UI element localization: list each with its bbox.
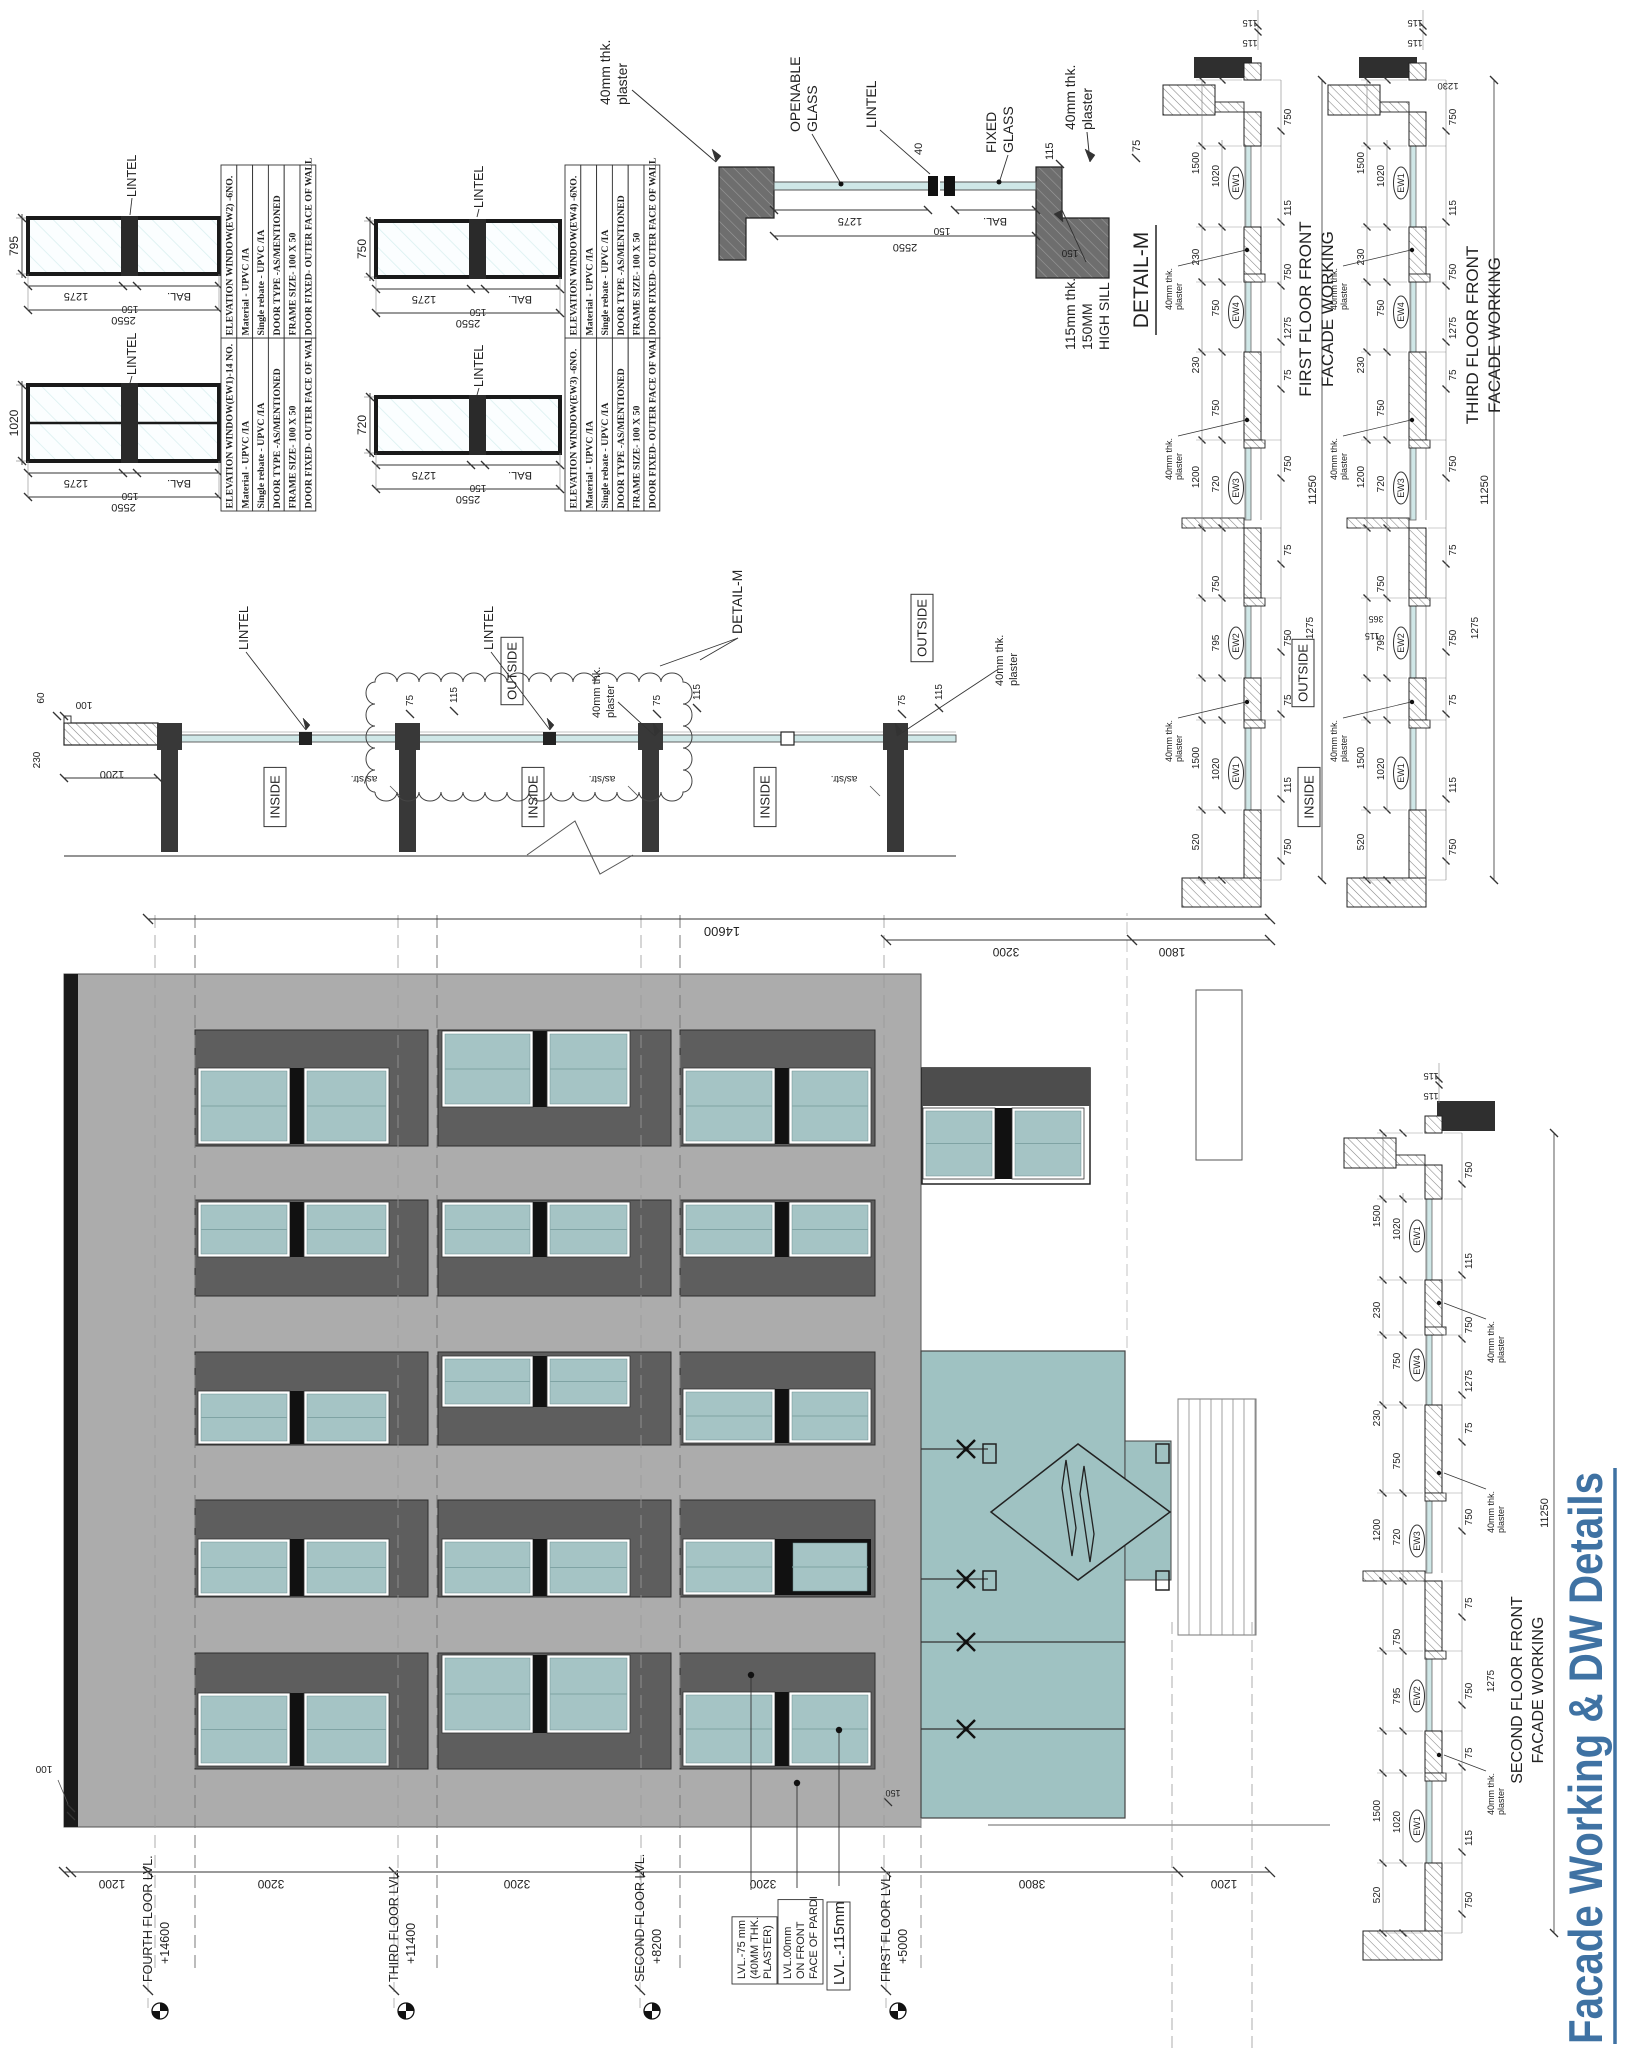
svg-text:+5000: +5000 xyxy=(896,1929,910,1964)
svg-text:150: 150 xyxy=(885,1788,900,1798)
svg-text:BAL.: BAL. xyxy=(508,293,532,305)
svg-text:115: 115 xyxy=(1365,631,1379,641)
svg-text:BAL.: BAL. xyxy=(508,469,532,481)
svg-text:795: 795 xyxy=(1392,1687,1403,1704)
svg-text:11250: 11250 xyxy=(1479,475,1491,505)
svg-text:HIGH SILL: HIGH SILL xyxy=(1096,282,1112,350)
svg-text:1020: 1020 xyxy=(1211,164,1222,187)
svg-text:75: 75 xyxy=(1131,140,1143,152)
svg-text:75: 75 xyxy=(1283,369,1294,381)
svg-text:OPENABLE: OPENABLE xyxy=(787,57,803,132)
svg-text:1275: 1275 xyxy=(838,215,862,227)
svg-text:720: 720 xyxy=(1211,475,1222,492)
svg-text:plaster: plaster xyxy=(614,63,630,105)
svg-text:DOOR FIXED- OUTER FACE OF WALL: DOOR FIXED- OUTER FACE OF WALL xyxy=(648,330,659,509)
svg-text:750: 750 xyxy=(1392,1452,1403,1469)
svg-text:720: 720 xyxy=(1376,475,1387,492)
svg-text:75: 75 xyxy=(1464,1422,1475,1434)
svg-text:40mm thk.: 40mm thk. xyxy=(1164,438,1174,480)
svg-text:as/str.: as/str. xyxy=(831,773,858,784)
svg-text:75: 75 xyxy=(897,694,908,706)
svg-text:40mm thk.: 40mm thk. xyxy=(994,635,1006,686)
svg-text:THIRD FLOOR FRONT: THIRD FLOOR FRONT xyxy=(1463,246,1482,425)
svg-text:plaster: plaster xyxy=(605,685,617,718)
svg-text:795: 795 xyxy=(1211,634,1222,651)
svg-text:EW2: EW2 xyxy=(1412,1686,1422,1706)
svg-text:750: 750 xyxy=(1283,838,1294,855)
svg-text:750: 750 xyxy=(1211,575,1222,592)
svg-text:1800: 1800 xyxy=(1158,945,1185,959)
svg-text:EW3: EW3 xyxy=(1412,1531,1422,1551)
svg-text:Single rebate - UPVC /IA: Single rebate - UPVC /IA xyxy=(256,230,267,336)
svg-text:DETAIL-M: DETAIL-M xyxy=(1130,232,1153,328)
svg-text:plaster: plaster xyxy=(1339,283,1349,310)
svg-text:750: 750 xyxy=(1464,1316,1475,1333)
svg-text:+14600: +14600 xyxy=(158,1922,172,1964)
svg-text:DOOR TYPE -AS/MENTIONED: DOOR TYPE -AS/MENTIONED xyxy=(616,195,627,335)
svg-text:EW1: EW1 xyxy=(1412,1816,1422,1836)
svg-text:EW1: EW1 xyxy=(1412,1226,1422,1246)
svg-text:115: 115 xyxy=(1448,777,1459,793)
svg-text:115: 115 xyxy=(1407,37,1422,48)
svg-text:1275: 1275 xyxy=(1305,616,1316,639)
svg-text:GLASS: GLASS xyxy=(1000,106,1016,153)
svg-text:EW4: EW4 xyxy=(1396,302,1406,322)
svg-text:11250: 11250 xyxy=(1307,475,1319,505)
svg-text:2550: 2550 xyxy=(456,493,480,505)
svg-text:750: 750 xyxy=(1283,455,1294,472)
svg-text:75: 75 xyxy=(1283,544,1294,556)
svg-text:1020: 1020 xyxy=(1376,757,1387,780)
svg-text:3200: 3200 xyxy=(992,945,1019,959)
svg-text:40: 40 xyxy=(913,143,925,155)
svg-text:1275: 1275 xyxy=(64,290,88,302)
svg-text:PLASTER): PLASTER) xyxy=(762,1925,774,1979)
svg-text:FACE OF PARDI: FACE OF PARDI xyxy=(808,1896,820,1979)
svg-text:750: 750 xyxy=(1376,399,1387,416)
svg-text:100: 100 xyxy=(75,699,92,710)
svg-text:GLASS: GLASS xyxy=(804,85,820,132)
svg-text:Single rebate - UPVC /IA: Single rebate - UPVC /IA xyxy=(256,403,267,509)
svg-text:750: 750 xyxy=(1448,455,1459,472)
svg-text:DOOR TYPE -AS/MENTIONED: DOOR TYPE -AS/MENTIONED xyxy=(272,195,283,335)
svg-text:2550: 2550 xyxy=(111,314,135,326)
svg-text:1200: 1200 xyxy=(1356,465,1367,488)
svg-text:115: 115 xyxy=(1464,1830,1475,1846)
svg-text:EW1: EW1 xyxy=(1231,763,1241,783)
svg-text:plaster: plaster xyxy=(1174,735,1184,762)
svg-text:FACADE WORKING: FACADE WORKING xyxy=(1318,231,1337,387)
svg-text:795: 795 xyxy=(7,236,21,256)
svg-text:plaster: plaster xyxy=(1496,1336,1506,1363)
svg-text:3800: 3800 xyxy=(1018,1877,1045,1891)
svg-text:520: 520 xyxy=(1372,1886,1383,1903)
svg-text:FRAME SIZE- 100 X 50: FRAME SIZE- 100 X 50 xyxy=(288,406,299,509)
svg-text:1200: 1200 xyxy=(1191,465,1202,488)
svg-text:230: 230 xyxy=(1372,1409,1383,1426)
svg-text:750: 750 xyxy=(1211,299,1222,316)
svg-text:FRAME SIZE- 100 X 50: FRAME SIZE- 100 X 50 xyxy=(632,406,643,509)
svg-text:EW4: EW4 xyxy=(1412,1355,1422,1375)
svg-text:1230: 1230 xyxy=(1437,80,1458,91)
svg-text:150: 150 xyxy=(469,306,486,317)
svg-text:750: 750 xyxy=(1464,1891,1475,1908)
svg-text:FOURTH FLOOR LVL.: FOURTH FLOOR LVL. xyxy=(141,1855,155,1982)
svg-text:115: 115 xyxy=(1448,200,1459,216)
svg-text:115: 115 xyxy=(1283,200,1294,216)
svg-text:1275: 1275 xyxy=(1486,1669,1497,1692)
svg-text:EW1: EW1 xyxy=(1231,173,1241,193)
svg-text:EW1: EW1 xyxy=(1396,763,1406,783)
svg-text:FACADE WORKING: FACADE WORKING xyxy=(1530,1617,1547,1764)
svg-text:115: 115 xyxy=(1423,1090,1438,1101)
svg-text:Material - UPVC /IA: Material - UPVC /IA xyxy=(584,421,595,509)
svg-text:Material - UPVC /IA: Material - UPVC /IA xyxy=(240,421,251,509)
svg-text:750: 750 xyxy=(1283,108,1294,125)
svg-text:750: 750 xyxy=(1464,1161,1475,1178)
svg-text:2550: 2550 xyxy=(111,501,135,513)
svg-text:EW3: EW3 xyxy=(1231,478,1241,498)
svg-text:750: 750 xyxy=(1283,263,1294,280)
svg-text:DOOR TYPE -AS/MENTIONED: DOOR TYPE -AS/MENTIONED xyxy=(272,368,283,508)
svg-text:115: 115 xyxy=(692,684,703,700)
svg-text:1275: 1275 xyxy=(412,469,436,481)
svg-text:FIRST FLOOR FRONT: FIRST FLOOR FRONT xyxy=(1296,221,1315,396)
svg-text:230: 230 xyxy=(1191,356,1202,373)
svg-text:115mm thk.: 115mm thk. xyxy=(1062,278,1078,350)
svg-text:750: 750 xyxy=(1376,299,1387,316)
svg-text:1275: 1275 xyxy=(1448,316,1459,339)
svg-text:115: 115 xyxy=(1242,37,1257,48)
svg-text:1200: 1200 xyxy=(1210,1877,1237,1891)
svg-text:750: 750 xyxy=(1448,838,1459,855)
svg-text:75: 75 xyxy=(1448,369,1459,381)
svg-text:LINTEL: LINTEL xyxy=(236,606,251,650)
svg-text:75: 75 xyxy=(652,694,663,706)
svg-text:FACADE WORKING: FACADE WORKING xyxy=(1485,257,1504,413)
svg-text:1275: 1275 xyxy=(1283,316,1294,339)
svg-text:OUTSIDE: OUTSIDE xyxy=(505,642,520,700)
svg-text:SECOND FLOOR FRONT: SECOND FLOOR FRONT xyxy=(1509,1596,1526,1784)
svg-text:11250: 11250 xyxy=(1539,1498,1551,1528)
svg-text:75: 75 xyxy=(1464,1597,1475,1609)
svg-text:365: 365 xyxy=(1368,614,1383,624)
svg-text:115: 115 xyxy=(449,687,460,703)
svg-text:3200: 3200 xyxy=(749,1877,776,1891)
svg-text:115: 115 xyxy=(934,684,945,700)
svg-text:1020: 1020 xyxy=(1376,164,1387,187)
svg-text:100: 100 xyxy=(35,1763,52,1774)
svg-text:LINTEL: LINTEL xyxy=(472,345,486,387)
svg-text:750: 750 xyxy=(1448,108,1459,125)
svg-text:1500: 1500 xyxy=(1356,746,1367,769)
svg-text:1200: 1200 xyxy=(1372,1518,1383,1541)
svg-text:1500: 1500 xyxy=(1372,1204,1383,1227)
svg-text:plaster: plaster xyxy=(1496,1788,1506,1815)
svg-text:150MM: 150MM xyxy=(1079,303,1095,350)
svg-text:150: 150 xyxy=(933,225,950,236)
svg-text:1500: 1500 xyxy=(1191,151,1202,174)
svg-text:40mm thk.: 40mm thk. xyxy=(1062,65,1078,130)
svg-text:750: 750 xyxy=(1448,263,1459,280)
svg-text:BAL.: BAL. xyxy=(167,290,191,302)
svg-text:750: 750 xyxy=(1211,399,1222,416)
svg-text:1500: 1500 xyxy=(1372,1799,1383,1822)
svg-text:OUTSIDE: OUTSIDE xyxy=(1296,644,1311,702)
svg-text:Single rebate - UPVC /IA: Single rebate - UPVC /IA xyxy=(600,230,611,336)
svg-text:INSIDE: INSIDE xyxy=(758,775,773,819)
svg-text:1020: 1020 xyxy=(1392,1217,1403,1240)
svg-text:plaster: plaster xyxy=(1008,653,1020,686)
svg-text:LVL.00mm: LVL.00mm xyxy=(782,1927,794,1979)
svg-text:Material - UPVC /IA: Material - UPVC /IA xyxy=(240,248,251,336)
svg-text:75: 75 xyxy=(1448,694,1459,706)
svg-text:115: 115 xyxy=(1464,1253,1475,1269)
svg-text:1275: 1275 xyxy=(1464,1369,1475,1392)
svg-text:DOOR FIXED- OUTER FACE OF WALL: DOOR FIXED- OUTER FACE OF WALL xyxy=(304,157,315,336)
svg-text:40mm thk.: 40mm thk. xyxy=(597,40,613,105)
svg-text:40mm thk.: 40mm thk. xyxy=(1164,720,1174,762)
svg-text:1200: 1200 xyxy=(98,1877,125,1891)
svg-text:75: 75 xyxy=(405,694,416,706)
svg-text:3200: 3200 xyxy=(503,1877,530,1891)
svg-text:720: 720 xyxy=(1392,1528,1403,1545)
svg-text:plaster: plaster xyxy=(1339,735,1349,762)
svg-text:1275: 1275 xyxy=(412,293,436,305)
svg-text:EW3: EW3 xyxy=(1396,478,1406,498)
svg-text:230: 230 xyxy=(32,751,43,768)
svg-text:EW4: EW4 xyxy=(1231,302,1241,322)
svg-text:40mm thk.: 40mm thk. xyxy=(1164,268,1174,310)
svg-text:LINTEL: LINTEL xyxy=(863,80,879,128)
svg-text:LINTEL: LINTEL xyxy=(125,333,139,375)
svg-text:3200: 3200 xyxy=(257,1877,284,1891)
svg-text:750: 750 xyxy=(355,239,369,259)
svg-text:BAL.: BAL. xyxy=(983,215,1007,227)
svg-text:14600: 14600 xyxy=(704,924,740,939)
svg-text:750: 750 xyxy=(1464,1682,1475,1699)
svg-text:150: 150 xyxy=(121,490,138,501)
svg-text:1020: 1020 xyxy=(7,409,21,436)
svg-text:1020: 1020 xyxy=(1211,757,1222,780)
svg-text:as/str.: as/str. xyxy=(589,773,616,784)
svg-text:150: 150 xyxy=(469,482,486,493)
svg-text:750: 750 xyxy=(1376,575,1387,592)
svg-text:1500: 1500 xyxy=(1191,746,1202,769)
svg-text:2550: 2550 xyxy=(456,317,480,329)
svg-text:THIRD FLOOR LVL.: THIRD FLOOR LVL. xyxy=(387,1869,401,1982)
svg-text:plaster: plaster xyxy=(1079,88,1095,130)
svg-text:plaster: plaster xyxy=(1174,453,1184,480)
svg-text:115: 115 xyxy=(1044,142,1056,160)
svg-text:Facade Working & DW Details: Facade Working & DW Details xyxy=(1559,1472,1612,2044)
svg-text:plaster: plaster xyxy=(1496,1506,1506,1533)
svg-text:+8200: +8200 xyxy=(650,1929,664,1964)
svg-text:1020: 1020 xyxy=(1392,1810,1403,1833)
svg-text:plaster: plaster xyxy=(1174,283,1184,310)
svg-text:2550: 2550 xyxy=(893,241,917,253)
svg-text:EW2: EW2 xyxy=(1396,633,1406,653)
svg-text:EW2: EW2 xyxy=(1231,633,1241,653)
svg-text:40mm thk.: 40mm thk. xyxy=(1486,1773,1496,1815)
svg-text:INSIDE: INSIDE xyxy=(268,775,283,819)
svg-text:1275: 1275 xyxy=(64,477,88,489)
svg-text:(40MM THK.: (40MM THK. xyxy=(749,1917,761,1979)
svg-text:230: 230 xyxy=(1372,1301,1383,1318)
svg-text:LINTEL: LINTEL xyxy=(472,166,486,208)
svg-text:40mm thk.: 40mm thk. xyxy=(1329,438,1339,480)
svg-text:LINTEL: LINTEL xyxy=(481,606,496,650)
svg-text:75: 75 xyxy=(1448,544,1459,556)
svg-text:SECOND FLOOR LVL.: SECOND FLOOR LVL. xyxy=(633,1854,647,1982)
svg-text:DOOR FIXED- OUTER FACE OF WALL: DOOR FIXED- OUTER FACE OF WALL xyxy=(304,330,315,509)
svg-text:750: 750 xyxy=(1392,1352,1403,1369)
svg-text:DOOR FIXED- OUTER FACE OF WALL: DOOR FIXED- OUTER FACE OF WALL xyxy=(648,157,659,336)
svg-text:1275: 1275 xyxy=(1470,616,1481,639)
svg-text:ELEVATION WINDOW(EW1)-14 NO.: ELEVATION WINDOW(EW1)-14 NO. xyxy=(225,343,236,508)
svg-text:plaster: plaster xyxy=(1339,453,1349,480)
svg-text:ELEVATION WINDOW(EW4) -6NO.: ELEVATION WINDOW(EW4) -6NO. xyxy=(569,175,580,335)
svg-text:75: 75 xyxy=(1464,1747,1475,1759)
svg-text:115: 115 xyxy=(1283,777,1294,793)
svg-text:150: 150 xyxy=(121,303,138,314)
svg-text:1500: 1500 xyxy=(1356,151,1367,174)
svg-text:DOOR TYPE -AS/MENTIONED: DOOR TYPE -AS/MENTIONED xyxy=(616,368,627,508)
svg-text:520: 520 xyxy=(1191,833,1202,850)
svg-text:OUTSIDE: OUTSIDE xyxy=(915,599,930,657)
svg-text:750: 750 xyxy=(1448,629,1459,646)
svg-text:+11400: +11400 xyxy=(404,1923,418,1964)
svg-text:ON FRONT: ON FRONT xyxy=(795,1921,807,1979)
svg-text:LVL.-115mm: LVL.-115mm xyxy=(831,1901,848,1985)
svg-text:ELEVATION WINDOW(EW2) -6NO.: ELEVATION WINDOW(EW2) -6NO. xyxy=(225,175,236,335)
svg-text:FIXED: FIXED xyxy=(983,112,999,153)
svg-text:FRAME SIZE- 100 X 50: FRAME SIZE- 100 X 50 xyxy=(288,233,299,336)
svg-text:750: 750 xyxy=(1392,1628,1403,1645)
svg-text:as/str.: as/str. xyxy=(351,773,378,784)
svg-text:ELEVATION WINDOW(EW3) -6NO.: ELEVATION WINDOW(EW3) -6NO. xyxy=(569,348,580,508)
svg-text:Material - UPVC /IA: Material - UPVC /IA xyxy=(584,248,595,336)
svg-text:150: 150 xyxy=(1061,247,1078,258)
svg-text:BAL.: BAL. xyxy=(167,477,191,489)
svg-text:LINTEL: LINTEL xyxy=(125,155,139,197)
svg-text:40mm thk.: 40mm thk. xyxy=(1329,720,1339,762)
svg-text:520: 520 xyxy=(1356,833,1367,850)
svg-text:INSIDE: INSIDE xyxy=(1302,775,1317,819)
svg-text:LVL.-75 mm: LVL.-75 mm xyxy=(736,1920,748,1979)
svg-text:40mm thk.: 40mm thk. xyxy=(1486,1321,1496,1363)
svg-text:DETAIL-M: DETAIL-M xyxy=(729,570,745,634)
svg-text:EW1: EW1 xyxy=(1396,173,1406,193)
svg-text:FRAME SIZE- 100 X 50: FRAME SIZE- 100 X 50 xyxy=(632,233,643,336)
svg-text:750: 750 xyxy=(1464,1508,1475,1525)
svg-text:Single rebate - UPVC /IA: Single rebate - UPVC /IA xyxy=(600,403,611,509)
svg-text:40mm thk.: 40mm thk. xyxy=(1486,1491,1496,1533)
svg-text:230: 230 xyxy=(1356,356,1367,373)
svg-text:60: 60 xyxy=(36,692,47,704)
svg-text:720: 720 xyxy=(355,415,369,435)
svg-text:FIRST FLOOR LVL.: FIRST FLOOR LVL. xyxy=(879,1871,893,1982)
